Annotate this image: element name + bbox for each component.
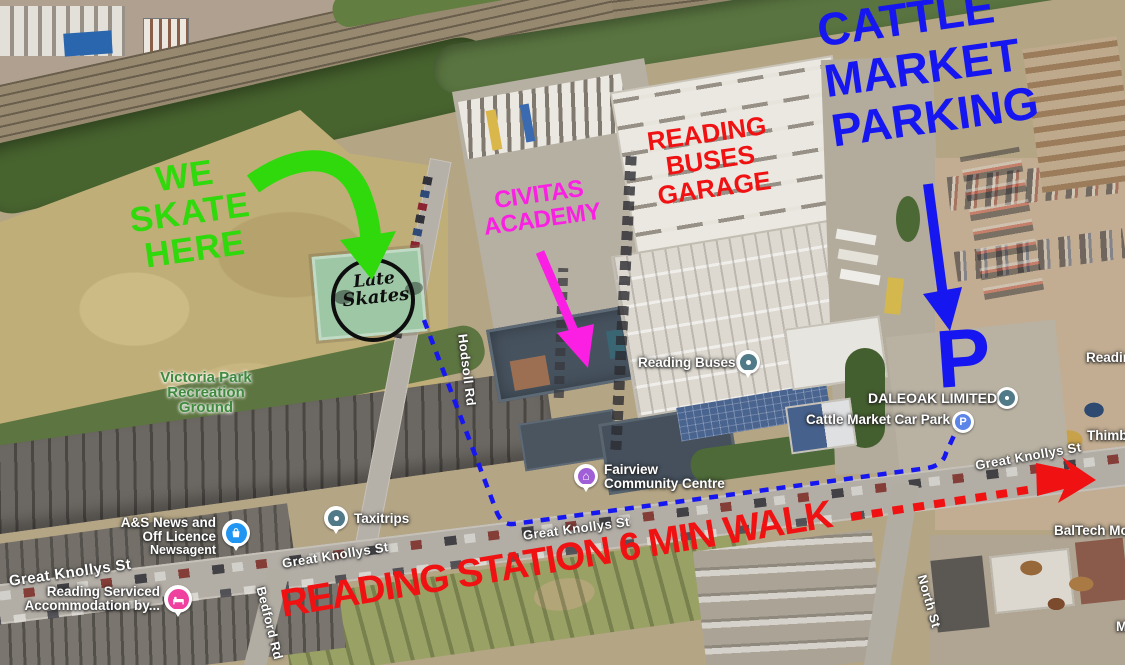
blue-arrow-body — [928, 184, 943, 296]
big-parking-p: P — [933, 316, 993, 402]
we-skate-here-text: WE SKATE HERE — [105, 148, 275, 279]
red-dashed-route — [851, 488, 1040, 517]
satellite-map[interactable]: Late Skates Victoria Park Recreation Gro… — [0, 0, 1125, 665]
green-arrowhead — [340, 231, 396, 280]
red-arrowhead — [1036, 457, 1096, 503]
magenta-arrow-body — [540, 252, 577, 338]
blue-dashed-route — [424, 320, 957, 524]
magenta-arrowhead — [557, 324, 594, 368]
